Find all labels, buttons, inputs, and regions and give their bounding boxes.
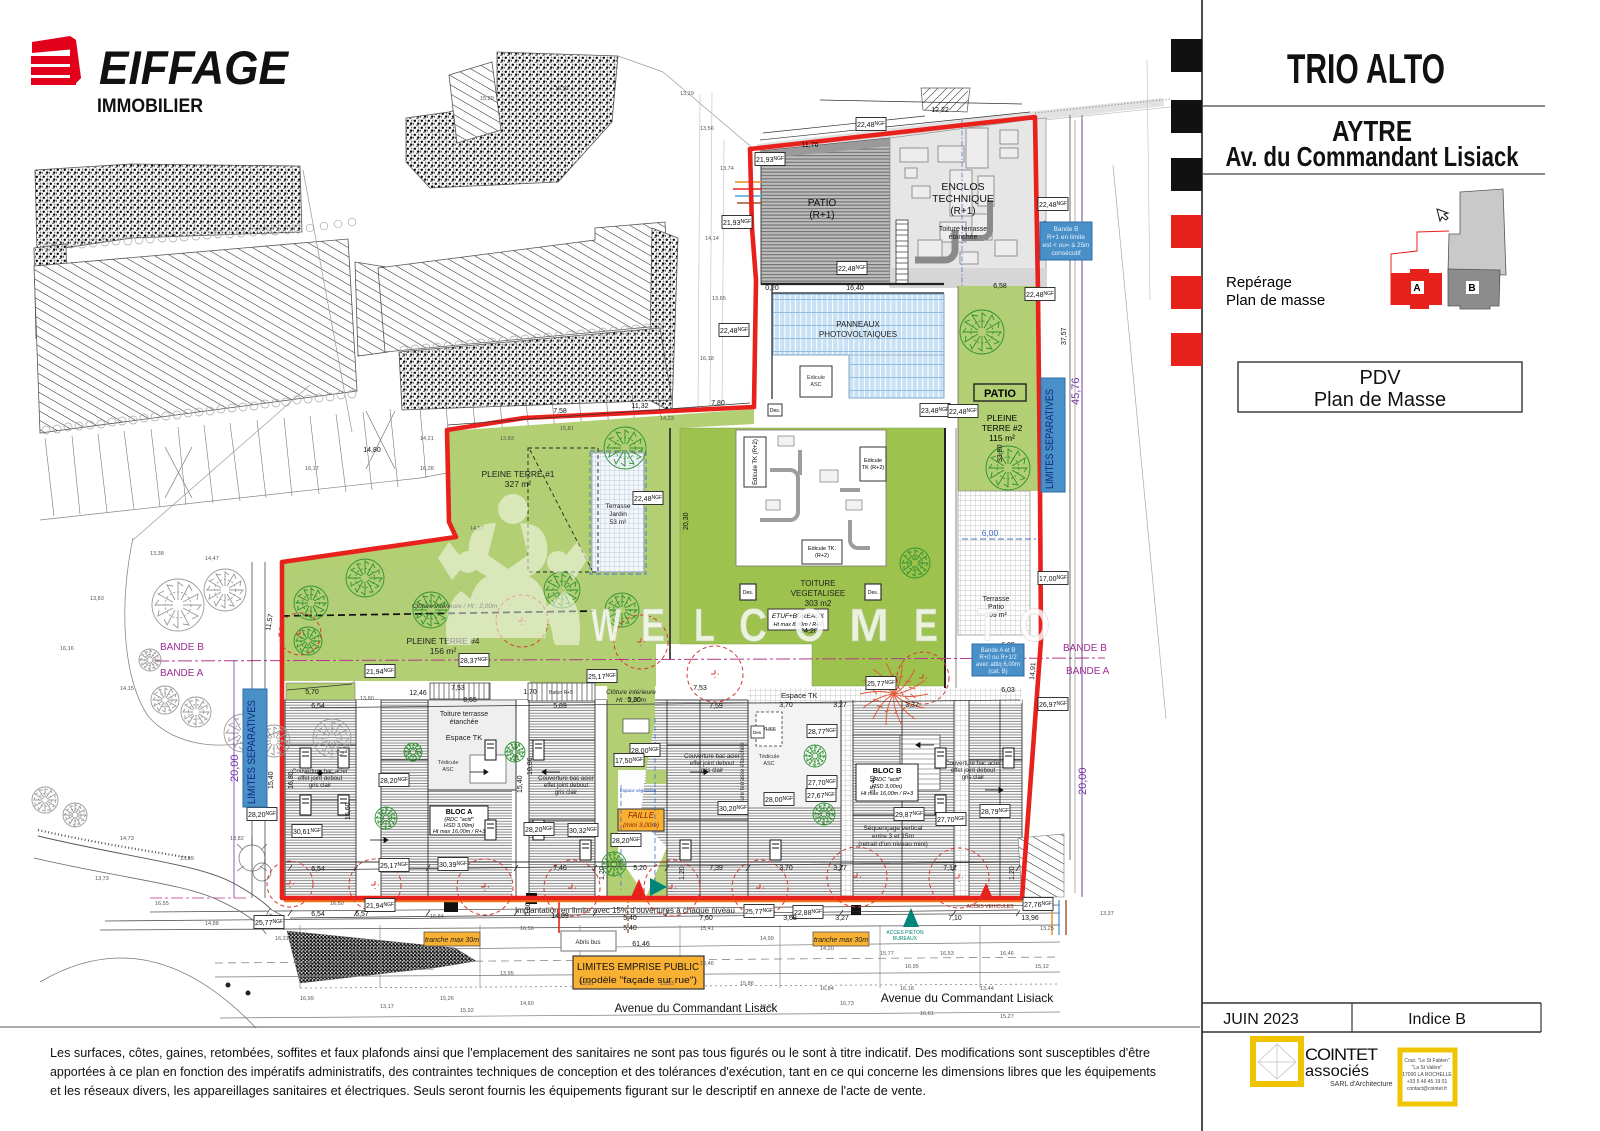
svg-text:16,55: 16,55: [155, 901, 169, 907]
svg-text:Baton R+5: Baton R+5: [549, 690, 573, 696]
svg-text:15,53: 15,53: [660, 981, 674, 987]
svg-text:13,80: 13,80: [360, 696, 374, 702]
svg-text:15,26: 15,26: [440, 996, 454, 1002]
svg-text:7,59: 7,59: [709, 703, 723, 710]
svg-text:13,65: 13,65: [712, 296, 726, 302]
svg-text:PHOTOVOLTAIQUES: PHOTOVOLTAIQUES: [819, 330, 897, 339]
svg-text:contact@cointet.fr: contact@cointet.fr: [1407, 1086, 1448, 1092]
svg-text:Cour. "Le St Fabien": Cour. "Le St Fabien": [1404, 1058, 1449, 1064]
svg-text:LIMITES EMPRISE PUBLIC: LIMITES EMPRISE PUBLIC: [577, 962, 699, 973]
svg-text:Avenue du Commandant Lisack: Avenue du Commandant Lisack: [615, 1003, 778, 1015]
svg-text:Couverture bac acier: Couverture bac acier: [684, 754, 740, 760]
svg-text:13,89: 13,89: [180, 856, 194, 862]
svg-text:Edicule TK.: Edicule TK.: [808, 546, 836, 552]
svg-text:est < ou= à 25m: est < ou= à 25m: [1043, 242, 1090, 249]
svg-text:12,22: 12,22: [931, 107, 949, 114]
svg-text:14,88: 14,88: [205, 921, 219, 927]
svg-text:BANDE A: BANDE A: [160, 668, 204, 679]
svg-text:(R+1): (R+1): [809, 210, 834, 221]
svg-text:T: T: [977, 599, 998, 651]
svg-text:1,20: 1,20: [599, 866, 606, 880]
svg-text:Bande B: Bande B: [1054, 226, 1079, 233]
svg-text:ACCES VEHICULES: ACCES VEHICULES: [967, 904, 1015, 910]
svg-text:Tédicule: Tédicule: [438, 760, 459, 766]
svg-text:et les réseaux divers, les app: et les réseaux divers, les appareillages…: [50, 1083, 926, 1098]
svg-text:JUIN 2023: JUIN 2023: [1223, 1011, 1299, 1028]
svg-text:15,40: 15,40: [517, 775, 524, 793]
svg-text:14,73: 14,73: [120, 836, 134, 842]
svg-text:13,44: 13,44: [980, 986, 994, 992]
svg-text:"La St Valère": "La St Valère": [1412, 1065, 1443, 1071]
svg-text:7,60: 7,60: [699, 915, 713, 922]
svg-text:TOITURE: TOITURE: [801, 579, 836, 588]
svg-text:E: E: [641, 599, 665, 651]
svg-text:20,00: 20,00: [1077, 767, 1089, 795]
svg-text:13,96: 13,96: [1021, 915, 1039, 922]
svg-text:0,20: 0,20: [765, 285, 779, 292]
svg-text:ENCLOS: ENCLOS: [941, 181, 984, 193]
svg-text:5,70: 5,70: [305, 689, 319, 696]
svg-text:13,83: 13,83: [90, 596, 104, 602]
svg-text:6,58: 6,58: [993, 283, 1007, 290]
svg-text:effet joint debout: effet joint debout: [690, 761, 735, 767]
svg-text:16,31: 16,31: [275, 936, 289, 942]
svg-text:R+1 en limite: R+1 en limite: [1047, 234, 1085, 241]
svg-text:0,80: 0,80: [525, 902, 532, 916]
svg-text:5,20: 5,20: [633, 865, 647, 872]
svg-text:EIFFAGE: EIFFAGE: [99, 41, 290, 94]
svg-text:BLOC A: BLOC A: [446, 809, 473, 816]
svg-text:associés: associés: [1305, 1063, 1369, 1080]
svg-text:15,27: 15,27: [1000, 1014, 1014, 1020]
svg-text:16,18: 16,18: [700, 356, 714, 362]
svg-text:16,18: 16,18: [900, 986, 914, 992]
svg-text:Des.: Des.: [770, 408, 780, 414]
svg-text:Toiture terrasse: Toiture terrasse: [939, 226, 987, 233]
svg-text:Av. du Commandant Lisiack: Av. du Commandant Lisiack: [1226, 141, 1519, 172]
svg-text:16,17: 16,17: [305, 466, 319, 472]
svg-text:13,56: 13,56: [700, 126, 714, 132]
svg-text:ASC: ASC: [442, 767, 453, 773]
svg-text:BUREAUX: BUREAUX: [893, 936, 918, 942]
svg-text:11,76: 11,76: [802, 142, 819, 149]
svg-text:LIMITES SEPARATIVES: LIMITES SEPARATIVES: [1044, 389, 1056, 489]
svg-text:Edicule TK (R+2): Edicule TK (R+2): [753, 439, 759, 485]
svg-text:16,16: 16,16: [60, 646, 74, 652]
svg-text:13,31: 13,31: [760, 1004, 774, 1010]
svg-text:TRIO ALTO: TRIO ALTO: [1287, 45, 1445, 92]
svg-text:14,21: 14,21: [420, 436, 434, 442]
svg-text:13,82: 13,82: [230, 836, 244, 842]
svg-text:Repérage: Repérage: [1226, 274, 1292, 291]
svg-text:Ht max 16,00m / R+3: Ht max 16,00m / R+3: [433, 829, 486, 835]
svg-text:16,46: 16,46: [700, 961, 714, 967]
svg-text:7,39: 7,39: [709, 865, 723, 872]
svg-text:14,99: 14,99: [760, 936, 774, 942]
svg-text:FAILLE: FAILLE: [628, 811, 655, 820]
svg-text:SARL d'Architecture: SARL d'Architecture: [1330, 1081, 1393, 1088]
svg-text:étanchée: étanchée: [949, 234, 978, 241]
svg-text:+33 5 46 45 19 01: +33 5 46 45 19 01: [1407, 1079, 1448, 1085]
svg-text:(R+2): (R+2): [815, 553, 829, 559]
svg-text:15,12: 15,12: [1035, 964, 1049, 970]
svg-text:(cat. B): (cat. B): [988, 669, 1007, 675]
svg-text:PLEINE TERRE #1: PLEINE TERRE #1: [481, 469, 554, 479]
svg-text:B: B: [1468, 283, 1475, 294]
svg-text:Toiture terrasse: Toiture terrasse: [440, 711, 488, 718]
svg-text:33,80: 33,80: [997, 444, 1004, 462]
svg-text:Couverture bac acier: Couverture bac acier: [538, 776, 594, 782]
svg-text:PATIO: PATIO: [808, 198, 837, 209]
svg-text:VEGETALISEE: VEGETALISEE: [791, 589, 846, 598]
svg-text:3,27: 3,27: [833, 702, 847, 709]
svg-text:16,50: 16,50: [330, 901, 344, 907]
svg-text:61,46: 61,46: [632, 941, 650, 948]
svg-text:BLOC B: BLOC B: [873, 766, 902, 775]
svg-text:11,32: 11,32: [632, 403, 649, 410]
svg-text:7,53: 7,53: [451, 685, 465, 692]
svg-text:A: A: [1413, 283, 1420, 294]
svg-text:O: O: [1019, 599, 1050, 651]
svg-text:(retrait d'un niveau mini): (retrait d'un niveau mini): [858, 841, 928, 848]
svg-text:Abris bus: Abris bus: [575, 940, 600, 946]
svg-text:16,53: 16,53: [940, 951, 954, 957]
svg-text:15,41: 15,41: [700, 926, 714, 932]
svg-text:avec attiq 6,00m: avec attiq 6,00m: [976, 662, 1020, 668]
svg-text:7,12: 7,12: [943, 865, 957, 872]
svg-text:M: M: [849, 599, 889, 651]
svg-text:Clôture intérieure: Clôture intérieure: [606, 689, 656, 696]
svg-text:14,89: 14,89: [551, 913, 569, 920]
svg-text:5,20: 5,20: [627, 697, 641, 704]
svg-text:(mini 3,00m): (mini 3,00m): [623, 822, 659, 829]
svg-text:étanchée: étanchée: [450, 719, 479, 726]
svg-text:13,83: 13,83: [500, 436, 514, 442]
svg-text:Des: Des: [753, 730, 762, 735]
svg-text:10,86: 10,86: [527, 757, 534, 775]
svg-text:15,86: 15,86: [740, 981, 754, 987]
svg-text:R+0 ou R+1/2: R+0 ou R+1/2: [979, 655, 1017, 661]
svg-text:20,30: 20,30: [683, 512, 690, 530]
svg-text:16,63: 16,63: [420, 966, 434, 972]
svg-text:13,38: 13,38: [150, 551, 164, 557]
svg-text:Tédicule: Tédicule: [759, 754, 780, 760]
svg-text:7,80: 7,80: [711, 400, 725, 407]
svg-text:ASC: ASC: [810, 382, 821, 388]
svg-text:3,70: 3,70: [779, 702, 793, 709]
svg-text:15,81: 15,81: [560, 426, 574, 432]
svg-text:entre 3 et 15m: entre 3 et 15m: [872, 833, 914, 840]
svg-text:Des.: Des.: [868, 590, 878, 596]
svg-text:327 m²: 327 m²: [505, 479, 532, 489]
svg-text:53 m²: 53 m²: [610, 519, 627, 526]
svg-text:(modèle "façade sur rue"): (modèle "façade sur rue"): [579, 975, 697, 986]
svg-text:14,15: 14,15: [120, 686, 134, 692]
svg-text:7,10: 7,10: [948, 915, 962, 922]
svg-text:16,60: 16,60: [345, 802, 352, 820]
svg-text:COINTET: COINTET: [1305, 1045, 1378, 1064]
svg-text:13,95: 13,95: [500, 971, 514, 977]
svg-text:12,46: 12,46: [409, 690, 427, 697]
svg-text:effet joint debout: effet joint debout: [544, 783, 589, 789]
svg-text:Les surfaces, côtes, gaines, r: Les surfaces, côtes, gaines, retombées, …: [50, 1045, 1150, 1060]
svg-text:15,77: 15,77: [880, 951, 894, 957]
svg-text:Edicule: Edicule: [807, 375, 825, 381]
svg-text:13,74: 13,74: [720, 166, 734, 172]
svg-text:14,60: 14,60: [520, 1001, 534, 1007]
svg-text:C: C: [739, 599, 767, 651]
svg-text:5,40: 5,40: [623, 925, 637, 932]
svg-text:14,47: 14,47: [205, 556, 219, 562]
svg-text:TERRE #2: TERRE #2: [982, 423, 1023, 433]
svg-text:5,89: 5,89: [553, 703, 567, 710]
svg-text:consécutif: consécutif: [1051, 250, 1080, 257]
svg-text:13,25: 13,25: [1040, 926, 1054, 932]
svg-text:13,81: 13,81: [580, 981, 594, 987]
svg-text:15,92: 15,92: [460, 1008, 474, 1014]
svg-text:17000 LA ROCHELLE: 17000 LA ROCHELLE: [1402, 1072, 1452, 1078]
svg-text:16,56: 16,56: [520, 926, 534, 932]
svg-text:effet joint debout: effet joint debout: [298, 776, 343, 782]
svg-text:Séquençage vertical: Séquençage vertical: [864, 825, 923, 832]
svg-text:Des.: Des.: [743, 590, 753, 596]
svg-text:ASC: ASC: [763, 761, 774, 767]
svg-text:Espace végétalisé: Espace végétalisé: [620, 788, 657, 793]
svg-text:Toiture terrasse étanchée: Toiture terrasse étanchée: [740, 742, 746, 810]
svg-text:15,40: 15,40: [268, 771, 275, 789]
svg-text:gris clair: gris clair: [962, 775, 984, 781]
svg-text:14,23: 14,23: [660, 416, 674, 422]
svg-text:Indice B: Indice B: [1408, 1011, 1466, 1028]
svg-text:gris clair: gris clair: [555, 790, 577, 796]
svg-text:tranche max 30m: tranche max 30m: [425, 937, 479, 944]
svg-text:Espace TK: Espace TK: [446, 733, 483, 742]
svg-text:PANNEAUX: PANNEAUX: [836, 320, 880, 329]
svg-text:Terrasse: Terrasse: [606, 503, 631, 510]
svg-text:Plan de Masse: Plan de Masse: [1314, 389, 1446, 411]
svg-text:Couverture bac acier: Couverture bac acier: [945, 761, 1001, 767]
svg-text:156 m²: 156 m²: [430, 646, 457, 656]
svg-text:7,53: 7,53: [693, 685, 707, 692]
svg-text:5,40: 5,40: [623, 915, 637, 922]
svg-text:7,58: 7,58: [553, 408, 567, 415]
svg-text:3,27: 3,27: [835, 915, 849, 922]
svg-text:15,29: 15,29: [350, 951, 364, 957]
svg-text:1,20: 1,20: [679, 866, 686, 880]
svg-text:16,28: 16,28: [420, 466, 434, 472]
svg-text:LIMITES SEPARATIVES: LIMITES SEPARATIVES: [246, 700, 258, 804]
svg-text:PATIO: PATIO: [984, 388, 1016, 400]
svg-text:Jardin: Jardin: [609, 511, 627, 518]
svg-text:16,99: 16,99: [300, 996, 314, 1002]
svg-text:13,19: 13,19: [680, 91, 694, 97]
svg-text:6,54: 6,54: [311, 866, 325, 873]
svg-text:TECHNIQUE: TECHNIQUE: [932, 193, 994, 205]
svg-text:1,70: 1,70: [523, 689, 537, 696]
svg-text:3,27: 3,27: [833, 865, 847, 872]
svg-text:16,46: 16,46: [1000, 951, 1014, 957]
svg-text:Ht max 16,00m / R+3: Ht max 16,00m / R+3: [861, 791, 914, 797]
svg-text:14,20: 14,20: [820, 946, 834, 952]
svg-text:13,37: 13,37: [1100, 911, 1114, 917]
svg-text:effet joint debout: effet joint debout: [951, 768, 996, 774]
svg-text:7,46: 7,46: [553, 865, 567, 872]
svg-text:16,40: 16,40: [846, 285, 864, 292]
svg-text:(R+1): (R+1): [950, 206, 975, 217]
svg-text:IMMOBILIER: IMMOBILIER: [97, 95, 203, 117]
svg-text:BANDE B: BANDE B: [1063, 643, 1107, 654]
svg-text:14,14: 14,14: [705, 236, 719, 242]
svg-text:5,57: 5,57: [355, 911, 369, 918]
svg-text:BANDE A: BANDE A: [1066, 666, 1110, 677]
svg-text:16,93: 16,93: [555, 86, 569, 92]
svg-text:PDV: PDV: [1359, 367, 1401, 389]
svg-text:6,54: 6,54: [311, 911, 325, 918]
svg-text:37,57: 37,57: [1061, 327, 1068, 345]
svg-text:tranche max 30m: tranche max 30m: [814, 937, 868, 944]
svg-text:BANDE B: BANDE B: [160, 642, 204, 653]
svg-text:gris clair: gris clair: [309, 783, 331, 789]
svg-text:16,61: 16,61: [920, 1011, 934, 1017]
svg-text:16,73: 16,73: [840, 1001, 854, 1007]
svg-text:8,65: 8,65: [463, 697, 477, 704]
svg-text:16,95: 16,95: [905, 964, 919, 970]
svg-text:15,29: 15,29: [480, 96, 494, 102]
svg-text:3,37: 3,37: [905, 702, 919, 709]
svg-text:13,73: 13,73: [95, 876, 109, 882]
svg-text:Avenue du Commandant Lisiack: Avenue du Commandant Lisiack: [881, 991, 1055, 1005]
svg-text:45,76: 45,76: [1070, 377, 1082, 405]
svg-text:Espace TK: Espace TK: [781, 691, 818, 700]
svg-text:Plan de masse: Plan de masse: [1226, 292, 1325, 309]
svg-text:TK (R+2): TK (R+2): [862, 465, 885, 471]
svg-text:13,17: 13,17: [380, 1004, 394, 1010]
svg-text:1,20: 1,20: [1009, 866, 1016, 880]
svg-text:6,03: 6,03: [1001, 687, 1015, 694]
svg-text:16,80: 16,80: [288, 771, 295, 789]
svg-text:Edicule: Edicule: [864, 458, 882, 464]
svg-text:16,84: 16,84: [430, 914, 444, 920]
svg-text:20,00: 20,00: [229, 754, 241, 782]
svg-text:E: E: [914, 599, 938, 651]
svg-text:apportées à ce plan en fonctio: apportées à ce plan en fonction des impé…: [50, 1064, 1156, 1079]
svg-text:O: O: [794, 599, 825, 651]
svg-text:PLEINE: PLEINE: [987, 413, 1018, 423]
svg-text:15,40: 15,40: [870, 775, 877, 793]
svg-text:W: W: [591, 599, 621, 651]
svg-text:6,54: 6,54: [311, 703, 325, 710]
svg-text:L: L: [694, 599, 715, 651]
svg-text:115 m²: 115 m²: [989, 433, 1015, 443]
svg-text:6,00: 6,00: [982, 528, 999, 538]
svg-text:14,80: 14,80: [363, 447, 381, 454]
svg-text:3,70: 3,70: [779, 865, 793, 872]
svg-text:16,84: 16,84: [820, 986, 834, 992]
svg-text:3,68: 3,68: [783, 915, 797, 922]
